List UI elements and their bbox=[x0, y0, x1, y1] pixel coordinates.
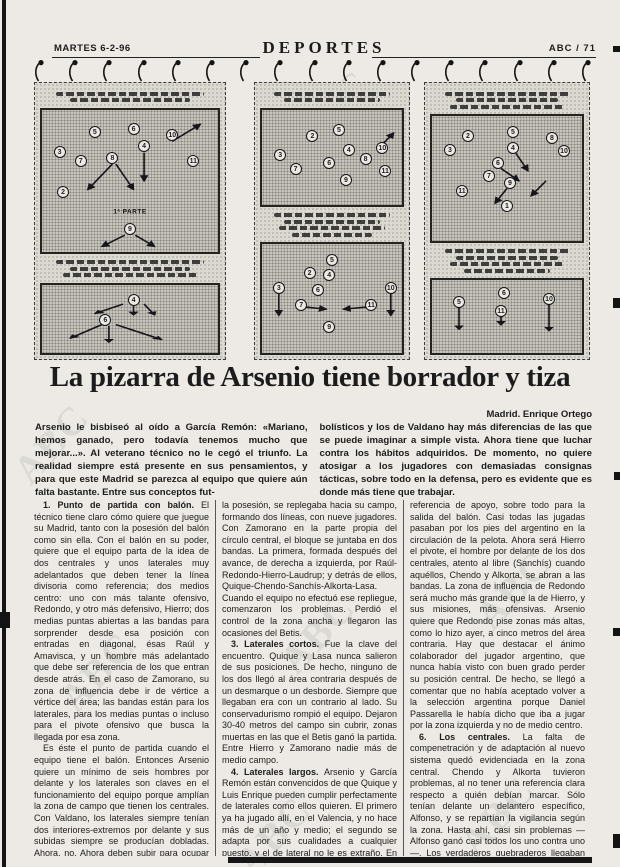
handwritten-caption bbox=[46, 258, 214, 280]
handwriting-line bbox=[292, 233, 371, 237]
player-marker: 4 bbox=[323, 269, 335, 281]
tactics-board-panel-3: 2534867910111561110 bbox=[424, 82, 590, 360]
binder-ring-icon bbox=[102, 59, 113, 82]
section-lead: 6. Los centrales. bbox=[419, 732, 523, 742]
binder-ring-icon bbox=[205, 59, 216, 82]
handwriting-line bbox=[56, 260, 204, 264]
binder-ring-icon bbox=[342, 59, 353, 82]
scan-artifact bbox=[613, 834, 620, 848]
paragraph: referencia de apoyo, sobre todo para la … bbox=[410, 500, 585, 732]
lead-column-left: Arsenio le bisbiseó al oído a García Rem… bbox=[35, 421, 308, 499]
player-marker: 3 bbox=[273, 282, 285, 294]
scan-artifact bbox=[613, 46, 620, 52]
masthead-rule-right bbox=[372, 57, 596, 58]
binder-ring-icon bbox=[581, 59, 592, 82]
binder-ring-icon bbox=[513, 59, 524, 82]
player-marker: 4 bbox=[343, 144, 355, 156]
handwriting-line bbox=[70, 267, 191, 271]
byline: Madrid. Enrique Ortego bbox=[320, 409, 592, 420]
page-bottom-rule bbox=[228, 857, 592, 863]
handwritten-caption bbox=[266, 211, 398, 240]
player-marker: 2 bbox=[462, 130, 474, 142]
player-marker: 2 bbox=[304, 267, 316, 279]
player-marker: 6 bbox=[312, 284, 324, 296]
lead-paragraph: Arsenio le bisbiseó al oído a García Rem… bbox=[35, 421, 592, 499]
player-marker: 5 bbox=[326, 254, 338, 266]
player-marker: 7 bbox=[483, 170, 495, 182]
scan-artifact bbox=[613, 298, 620, 308]
handwriting-line bbox=[284, 98, 379, 102]
tactics-board-panel-1: 5637841011291ª PARTE46 bbox=[34, 82, 226, 360]
section-lead: 3. Laterales cortos. bbox=[231, 639, 325, 649]
binder-ring-icon bbox=[478, 59, 489, 82]
tactical-diagram: 5637841011291ª PARTE bbox=[40, 108, 220, 254]
handwriting-line bbox=[274, 92, 390, 96]
player-marker: 11 bbox=[456, 185, 468, 197]
player-marker: 7 bbox=[290, 163, 302, 175]
headline: La pizarra de Arsenio tiene borrador y t… bbox=[20, 361, 600, 394]
handwritten-caption bbox=[266, 89, 398, 105]
player-marker: 11 bbox=[495, 305, 507, 317]
diagram-label: 1ª PARTE bbox=[113, 208, 146, 215]
player-marker: 11 bbox=[379, 165, 391, 177]
player-marker: 2 bbox=[57, 186, 69, 198]
handwriting-line bbox=[56, 92, 204, 96]
handwriting-line bbox=[464, 269, 549, 273]
article-column-3: referencia de apoyo, sobre todo para la … bbox=[403, 500, 591, 856]
handwriting-line bbox=[279, 226, 385, 230]
player-marker: 9 bbox=[124, 223, 136, 235]
section-lead: 4. Laterales largos. bbox=[231, 767, 324, 777]
binder-ring-icon bbox=[444, 59, 455, 82]
binder-ring-icon bbox=[410, 59, 421, 82]
tactical-diagram: 52436107119 bbox=[260, 242, 404, 355]
handwriting-line bbox=[450, 262, 564, 266]
player-marker: 10 bbox=[376, 142, 388, 154]
player-marker: 1 bbox=[501, 200, 513, 212]
paragraph: 1. Punto de partida con balón. El técnic… bbox=[34, 500, 209, 743]
handwriting-line bbox=[456, 256, 558, 260]
handwriting-line bbox=[70, 98, 191, 102]
tactical-diagram: 561110 bbox=[430, 278, 584, 355]
player-marker: 7 bbox=[75, 155, 87, 167]
tactical-diagram: 2534867910111 bbox=[430, 114, 584, 243]
handwriting-line bbox=[456, 98, 558, 102]
binder-ring-icon bbox=[547, 59, 558, 82]
section-title: DEPORTES bbox=[52, 38, 596, 58]
article-body: 1. Punto de partida con balón. El técnic… bbox=[34, 500, 591, 856]
player-marker: 6 bbox=[128, 123, 140, 135]
masthead: MARTES 6-2-96 DEPORTES ABC / 71 bbox=[52, 38, 596, 58]
scan-artifact bbox=[613, 628, 620, 636]
scan-left-edge bbox=[2, 0, 6, 867]
handwritten-caption bbox=[46, 89, 214, 105]
binder-ring-icon bbox=[171, 59, 182, 82]
tactical-diagram: 46 bbox=[40, 283, 220, 355]
paragraph: la posesión, se replegaba hacia su campo… bbox=[222, 500, 397, 639]
newspaper-page: ABCABCABCABCABCABCABCABCABCABC MARTES 6-… bbox=[0, 0, 620, 867]
binder-ring-icon bbox=[137, 59, 148, 82]
player-marker: 3 bbox=[54, 146, 66, 158]
handwriting-line bbox=[284, 220, 379, 224]
handwriting-line bbox=[445, 92, 570, 96]
handwritten-caption bbox=[436, 89, 578, 111]
player-marker: 5 bbox=[89, 126, 101, 138]
paragraph: Es éste el punto de partida cuando el eq… bbox=[34, 743, 209, 856]
player-marker: 10 bbox=[385, 282, 397, 294]
tactical-diagram: 372564891011 bbox=[260, 108, 404, 207]
tactics-board-panel-2: 37256489101152436107119 bbox=[254, 82, 410, 360]
page-number: ABC / 71 bbox=[549, 43, 596, 54]
spiral-binding bbox=[34, 59, 592, 82]
handwriting-line bbox=[63, 273, 197, 277]
player-marker: 8 bbox=[360, 153, 372, 165]
binder-ring-icon bbox=[239, 59, 250, 82]
handwriting-line bbox=[274, 213, 390, 217]
player-marker: 11 bbox=[187, 155, 199, 167]
scan-artifact bbox=[614, 472, 620, 480]
binder-ring-icon bbox=[68, 59, 79, 82]
player-marker: 3 bbox=[444, 144, 456, 156]
section-lead: 1. Punto de partida con balón. bbox=[43, 500, 201, 510]
binder-ring-icon bbox=[34, 59, 45, 82]
handwriting-line bbox=[445, 249, 570, 253]
paragraph: 6. Los centrales. La falta de compenetra… bbox=[410, 732, 585, 856]
article-column-1: 1. Punto de partida con balón. El técnic… bbox=[34, 500, 215, 856]
paragraph: 4. Laterales largos. Arsenio y García Re… bbox=[222, 767, 397, 856]
player-marker: 4 bbox=[128, 294, 140, 306]
lead-column-right: bolísticos y los de Valdano hay más dife… bbox=[320, 421, 593, 499]
handwriting-line bbox=[450, 105, 564, 109]
binder-ring-icon bbox=[308, 59, 319, 82]
paragraph: 3. Laterales cortos. Fue la clave del en… bbox=[222, 639, 397, 767]
player-marker: 10 bbox=[558, 145, 570, 157]
scan-artifact bbox=[0, 612, 10, 628]
binder-ring-icon bbox=[273, 59, 284, 82]
binder-ring-icon bbox=[376, 59, 387, 82]
masthead-rule-left bbox=[52, 57, 260, 58]
article-column-2: la posesión, se replegaba hacia su campo… bbox=[215, 500, 403, 856]
handwritten-caption bbox=[436, 247, 578, 276]
